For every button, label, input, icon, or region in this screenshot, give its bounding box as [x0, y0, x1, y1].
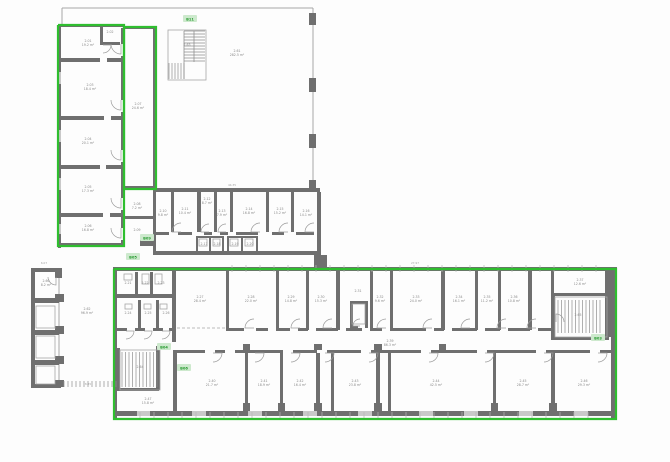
room-label: 2.3015.3 m²: [315, 295, 328, 303]
wall-segment: [487, 350, 536, 353]
room-label: 2.4118.9 m²: [258, 379, 271, 387]
door-arc: [144, 331, 152, 339]
wall-segment: [390, 328, 426, 331]
wall-segment: [171, 192, 174, 232]
wall-segment: [227, 236, 258, 238]
wall-segment: [215, 350, 225, 353]
room-label: 2.26: [162, 311, 169, 315]
door-arc: [111, 44, 121, 54]
wall-segment: [256, 236, 258, 252]
room-label: 2.3712.6 m²: [574, 278, 587, 286]
room-label: 2.1515.2 m²: [274, 207, 287, 215]
wall-segment: [306, 270, 309, 330]
door-arc: [111, 100, 121, 110]
wall-segment: [55, 270, 62, 278]
window-strip: [519, 411, 533, 416]
room-label: 2.6296.9 m²: [81, 307, 94, 315]
door-arc: [111, 198, 121, 208]
wall-segment: [327, 350, 361, 353]
wall-segment: [350, 301, 367, 304]
door-arc: [429, 353, 438, 362]
room-label: 2.2914.8 m²: [285, 295, 298, 303]
wall-segment: [196, 236, 224, 238]
wall-segment: [226, 328, 244, 331]
fixture: [555, 297, 607, 337]
wall-segment: [115, 294, 175, 298]
wall-segment: [150, 272, 153, 296]
wall-segment: [245, 353, 248, 411]
door-tag-label: B03: [594, 337, 602, 341]
wall-segment: [107, 58, 124, 62]
wall-segment: [316, 353, 320, 411]
walls-layer: [31, 13, 617, 418]
wall-segment: [538, 328, 553, 331]
door-arc: [291, 353, 300, 362]
wall-segment: [58, 58, 100, 62]
door-arc: [218, 224, 226, 232]
room-label: 2.64: [136, 365, 143, 369]
wall-segment: [374, 403, 382, 411]
wall-segment: [100, 26, 103, 44]
room-label: 2.329.6 m²: [375, 295, 386, 303]
wall-segment: [278, 403, 285, 411]
wall-segment: [222, 236, 224, 252]
wall-segment: [58, 116, 104, 120]
room-label: 2.4216.4 m²: [294, 379, 307, 387]
room-label: 2.109.8 m²: [158, 209, 169, 217]
wall-segment: [235, 350, 283, 353]
door-arc: [126, 331, 134, 339]
room-label: 2.128.7 m²: [202, 197, 213, 205]
door-arc: [279, 223, 288, 232]
door-arc: [245, 319, 254, 328]
door-arc: [291, 319, 300, 328]
door-tag: B05: [126, 253, 140, 260]
room-label: 2.3511.2 m²: [481, 295, 494, 303]
door-arc: [598, 353, 607, 362]
wall-segment: [117, 388, 159, 391]
room-label: 2.3610.8 m²: [508, 295, 521, 303]
door-arc: [461, 319, 470, 328]
door-arc: [377, 319, 386, 328]
wall-segment: [153, 328, 163, 331]
room-label: 2.0724.6 m²: [132, 102, 145, 110]
wall-segment: [600, 350, 612, 353]
wall-segment: [100, 42, 120, 45]
wall-segment: [31, 270, 35, 388]
dimension-label: 27.97: [411, 261, 419, 265]
room-label: 2.31: [354, 289, 361, 293]
wall-segment: [241, 236, 243, 252]
door-arc: [423, 319, 432, 328]
wall-segment: [124, 216, 154, 219]
wall-segment: [214, 192, 217, 232]
wall-segment: [280, 353, 283, 411]
door-tag: B06: [177, 364, 191, 371]
fixture: [36, 336, 55, 358]
room-label: 2.65: [574, 313, 581, 317]
wall-segment: [230, 192, 233, 232]
wall-segment: [605, 270, 611, 337]
wall-segment: [309, 13, 316, 25]
wall-segment: [331, 353, 334, 411]
wall-segment: [434, 328, 444, 331]
wall-segment: [110, 213, 124, 217]
window-strip: [192, 411, 206, 416]
wall-segment: [55, 380, 64, 387]
wall-segment: [196, 236, 198, 252]
wall-segment: [452, 328, 477, 331]
wall-segment: [117, 328, 127, 331]
wall-segment: [431, 350, 477, 353]
dimension-label: 6.07: [41, 261, 47, 265]
stair: [169, 63, 184, 79]
door-arc: [162, 331, 170, 339]
door-tag: B11: [183, 15, 197, 22]
wall-segment: [370, 328, 382, 331]
room-label: 2.25: [144, 311, 151, 315]
room-label: 2.19: [231, 242, 238, 246]
door-arc: [213, 353, 222, 362]
door-arc: [323, 319, 332, 328]
room-label: 2.09: [133, 228, 140, 232]
wall-segment: [172, 270, 176, 342]
room-label: 2.02: [106, 30, 113, 34]
room-label: 2.61282.5 m²: [230, 49, 245, 57]
wall-segment: [314, 344, 322, 350]
fixture: [36, 306, 55, 328]
wall-segment: [388, 353, 391, 411]
room-label: 2.4323.8 m²: [349, 379, 362, 387]
wall-segment: [365, 301, 368, 328]
wall-segment: [220, 232, 228, 235]
green-outline-path: [114, 269, 616, 419]
wall-segment: [55, 294, 64, 302]
window-strip: [419, 411, 433, 416]
wall-segment: [197, 192, 201, 232]
room-label: 2.087.2 m²: [132, 202, 143, 210]
door-tag-label: B09: [143, 237, 151, 241]
wall-segment: [546, 350, 590, 353]
door-tag: B03: [591, 334, 605, 341]
fixture: [120, 350, 160, 390]
wall-segment: [153, 188, 320, 192]
window-strip: [137, 411, 150, 416]
room-label: 2.18: [213, 242, 220, 246]
room-label: 2.0318.4 m²: [84, 83, 97, 91]
door-arc: [111, 150, 121, 160]
door-arc: [255, 353, 264, 362]
wall-segment: [58, 213, 103, 217]
room-label: 2.2822.0 m²: [245, 295, 258, 303]
thin-lines-layer: [59, 8, 313, 384]
wall-segment: [58, 165, 100, 169]
dimension-label: 44.35: [228, 183, 236, 187]
wall-segment: [204, 232, 212, 235]
wall-segment: [491, 403, 498, 411]
wall-segment: [226, 270, 229, 330]
fixture: [352, 304, 365, 324]
door-arc: [485, 353, 494, 362]
door-tag-label: B05: [129, 256, 137, 260]
wall-segment: [266, 192, 269, 232]
wall-segment: [276, 270, 279, 330]
wall-segment: [256, 328, 268, 331]
stair: [122, 352, 157, 387]
wall-segment: [390, 270, 393, 330]
wall-segment: [508, 328, 530, 331]
wall-segment: [106, 165, 124, 169]
wall-segment: [156, 300, 159, 330]
facade-ticks-layer: [140, 265, 596, 418]
door-arc: [353, 319, 360, 326]
wall-segment: [276, 328, 290, 331]
wall-segment: [316, 328, 338, 331]
wall-segment: [227, 236, 229, 252]
fixture: [36, 366, 55, 384]
room-label: 2.4528.7 m²: [517, 379, 530, 387]
wall-segment: [298, 328, 308, 331]
room-label: 2.21: [124, 281, 131, 285]
door-arc: [111, 228, 121, 238]
door-arc: [201, 224, 209, 232]
room-label: 2.2728.4 m²: [194, 295, 207, 303]
room-label: 2.4021.7 m²: [206, 379, 219, 387]
room-label: 2.3416.1 m²: [453, 295, 466, 303]
door-arc: [103, 45, 111, 53]
room-label: 2.4442.5 m²: [430, 379, 443, 387]
room-label: 2.0517.3 m²: [82, 185, 95, 193]
wall-segment: [155, 232, 169, 235]
room-label: 2.137.9 m²: [217, 209, 228, 217]
wall-segment: [336, 270, 340, 330]
door-tag-label: B04: [160, 346, 168, 350]
room-label: 2.0616.8 m²: [82, 224, 95, 232]
door-tag: B09: [140, 234, 154, 241]
door-arc: [556, 314, 564, 322]
room-label: 2.3324.0 m²: [410, 295, 423, 303]
wall-segment: [376, 353, 380, 411]
wall-segment: [441, 270, 445, 330]
window-strip: [574, 411, 588, 416]
room-label: 2.4715.8 m²: [142, 397, 155, 405]
wall-segment: [236, 232, 258, 235]
wall-segment: [156, 346, 160, 390]
wall-segment: [173, 350, 177, 413]
wall-segment: [551, 293, 555, 340]
fixture: [125, 304, 132, 309]
floor-plan-canvas: 2.0119.2 m²2.022.0318.4 m²2.0420.1 m²2.0…: [0, 0, 670, 462]
wall-segment: [291, 192, 294, 232]
green-outline-layer: [58, 25, 616, 419]
wall-segment: [153, 251, 320, 255]
door-tag-label: B06: [180, 367, 188, 371]
room-label: 2.20: [246, 242, 253, 246]
fixture: [144, 304, 151, 309]
room-label: 2.608.2 m²: [41, 279, 52, 287]
wall-segment: [272, 232, 284, 235]
wall-segment: [314, 403, 322, 411]
wall-segment: [117, 348, 120, 390]
room-label: 2.0420.1 m²: [82, 137, 95, 145]
fixture: [160, 304, 167, 309]
dimension-label: 8.85: [85, 382, 91, 386]
wall-segment: [370, 270, 373, 330]
room-label: 2.23: [157, 281, 164, 285]
room-label: 2.3986.3 m²: [384, 339, 397, 347]
wall-segment: [309, 134, 316, 148]
wall-segment: [243, 403, 250, 411]
window-strip: [358, 411, 372, 416]
door-arc: [305, 223, 314, 232]
room-label: 2.1416.8 m²: [243, 207, 256, 215]
room-label: 2.4629.3 m²: [578, 379, 591, 387]
wall-segment: [371, 350, 421, 353]
wall-segment: [209, 236, 211, 252]
window-strip: [248, 411, 262, 416]
wall-segment: [374, 344, 382, 350]
room-label: 2.0119.2 m²: [82, 39, 95, 47]
room-label: 2.22: [141, 281, 148, 285]
wall-segment: [111, 116, 124, 120]
window-strip: [303, 411, 317, 416]
door-tag-label: B11: [186, 18, 194, 22]
wall-segment: [309, 78, 316, 92]
wall-segment: [178, 232, 192, 235]
wall-segment: [177, 350, 205, 353]
wall-segment: [135, 328, 145, 331]
wall-segment: [296, 232, 314, 235]
door-arc: [251, 223, 260, 232]
wall-segment: [293, 350, 317, 353]
wall-segment: [551, 353, 555, 411]
stairs-layer: [64, 31, 600, 387]
room-label: 2.1110.4 m²: [179, 207, 192, 215]
wall-segment: [243, 344, 250, 350]
wall-segment: [493, 353, 496, 411]
fixture: [124, 274, 132, 280]
wall-segment: [55, 356, 64, 364]
wall-segment: [549, 403, 557, 411]
room-label: 2.63: [183, 43, 190, 47]
wall-segment: [439, 344, 446, 350]
wall-segment: [317, 192, 321, 255]
room-label: 2.17: [200, 242, 207, 246]
room-label: 2.1614.1 m²: [300, 209, 313, 217]
wall-segment: [551, 293, 609, 296]
wall-segment: [138, 300, 141, 330]
wall-segment: [135, 272, 138, 296]
room-label: 2.24: [124, 311, 131, 315]
wall-segment: [169, 328, 175, 331]
wall-segment: [55, 326, 64, 334]
door-tag: B04: [157, 343, 171, 350]
wall-segment: [475, 270, 478, 330]
doors-layer: [48, 44, 607, 362]
wall-segment: [346, 328, 362, 331]
wall-segment: [485, 328, 500, 331]
floor-plan-svg: 2.0119.2 m²2.022.0318.4 m²2.0420.1 m²2.0…: [0, 0, 670, 462]
